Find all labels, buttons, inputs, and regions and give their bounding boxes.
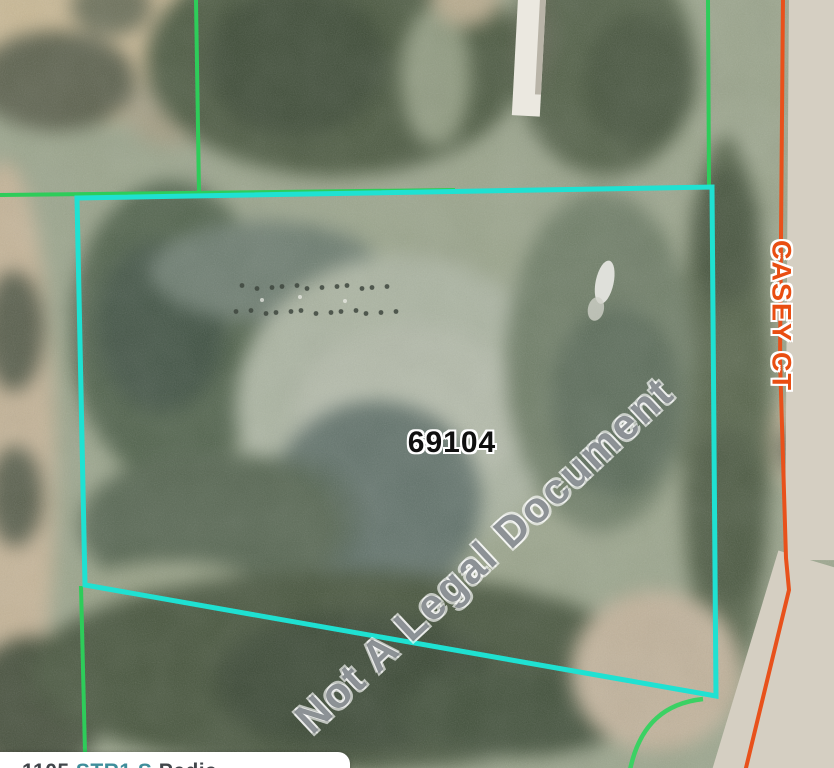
property-line-topright-vertical	[708, 0, 709, 186]
property-line-top-vertical	[196, 0, 199, 193]
corner-curve-line	[630, 699, 703, 768]
info-box: 1105 STR1 S Pedia	[0, 752, 350, 768]
building	[512, 0, 547, 117]
ground-structure-rows	[234, 283, 399, 316]
street-name-label: CASEY CT	[766, 240, 797, 392]
info-box-text-2: STR1 S	[76, 760, 159, 768]
property-line-bottomleft-vertical	[81, 586, 85, 752]
property-lines	[0, 0, 709, 752]
parcel-number-label: 69104	[408, 426, 496, 460]
map-view[interactable]: 69104 CASEY CT Not A Legal Document 1105…	[0, 0, 834, 768]
info-box-text-1: 1105	[22, 760, 76, 768]
vehicle	[586, 258, 618, 323]
info-box-text-3: Pedia	[159, 760, 218, 768]
